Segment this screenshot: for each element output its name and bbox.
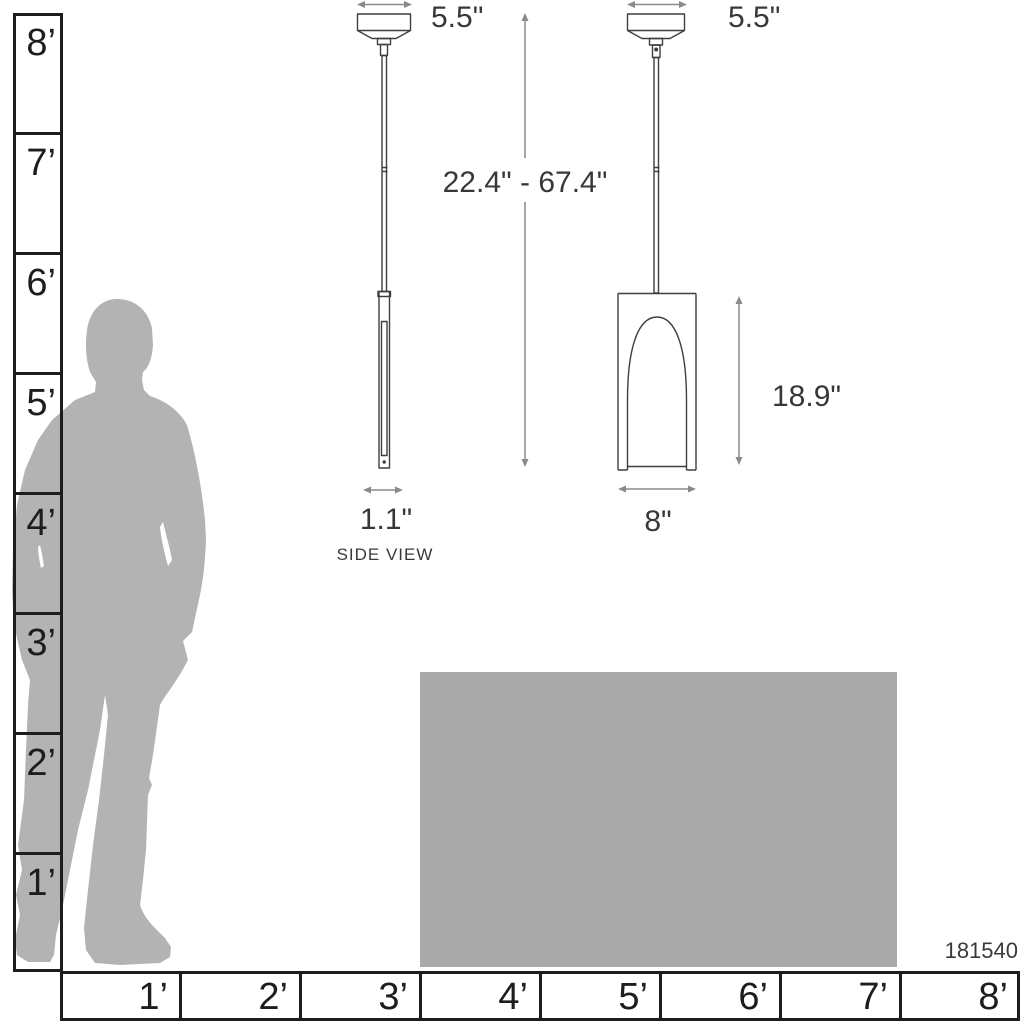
front-connector-screw [654, 48, 658, 52]
vertical-ruler-label: 1’ [26, 862, 56, 904]
front-shade-outline [618, 294, 696, 471]
shade-height-arrow [736, 296, 743, 465]
side-stem-rod [382, 56, 387, 292]
front-shade-arch [628, 317, 687, 467]
hanging-height-arrow [522, 13, 529, 467]
shade-width-arrow [618, 486, 696, 493]
vertical-ruler-label: 5’ [26, 382, 56, 424]
side-shade-profile [379, 292, 390, 469]
horizontal-ruler-label: 5’ [618, 976, 648, 1018]
product-number: 181540 [945, 938, 1018, 963]
diagram-canvas: 8’ 7’ 6’ 5’ 4’ 3’ 2’ 1’ 1’ 2’ 3’ 4’ 5’ 6… [0, 0, 1024, 1024]
vertical-ruler-label: 6’ [26, 262, 56, 304]
front-stem-connector [650, 39, 663, 46]
pendant-front-view-drawing [618, 14, 696, 470]
front-stem-rod [654, 58, 659, 294]
pendant-side-view-drawing [358, 14, 411, 468]
front-canopy [628, 14, 685, 39]
front-canopy-width-label: 5.5" [728, 1, 780, 34]
side-shade-bottom-detail [383, 460, 386, 463]
side-stem-connector-lower [381, 45, 388, 56]
side-canopy-width-arrow [357, 1, 412, 8]
horizontal-ruler-label: 4’ [498, 976, 528, 1018]
scale-diagram: 8’ 7’ 6’ 5’ 4’ 3’ 2’ 1’ 1’ 2’ 3’ 4’ 5’ 6… [0, 0, 1024, 1024]
table-scale-block [420, 672, 897, 967]
side-shade-inner-slot [382, 322, 388, 456]
horizontal-ruler-label: 1’ [138, 976, 168, 1018]
horizontal-ruler-label: 3’ [378, 976, 408, 1018]
side-canopy [358, 14, 411, 39]
shade-width-label: 8" [644, 505, 671, 538]
vertical-ruler-label: 8’ [26, 22, 56, 64]
vertical-ruler-label: 4’ [26, 502, 56, 544]
side-canopy-width-label: 5.5" [431, 1, 483, 34]
front-canopy-width-arrow [627, 1, 687, 8]
vertical-ruler-label: 3’ [26, 622, 56, 664]
side-shade-top-cap [378, 292, 391, 297]
side-stem-connector [378, 39, 391, 45]
dimension-annotations [357, 1, 743, 494]
horizontal-ruler: 1’ 2’ 3’ 4’ 5’ 6’ 7’ 8’ [62, 973, 1019, 1020]
horizontal-ruler-label: 2’ [258, 976, 288, 1018]
side-view-caption: SIDE VIEW [337, 545, 434, 564]
vertical-ruler-label: 2’ [26, 742, 56, 784]
horizontal-ruler-label: 8’ [978, 976, 1008, 1018]
side-profile-width-label: 1.1" [360, 503, 412, 536]
shade-height-label: 18.9" [772, 380, 841, 413]
horizontal-ruler-label: 6’ [738, 976, 768, 1018]
side-profile-width-arrow [363, 487, 403, 494]
horizontal-ruler-label: 7’ [858, 976, 888, 1018]
vertical-ruler-label: 7’ [26, 142, 56, 184]
hanging-height-range-label: 22.4" - 67.4" [443, 166, 608, 199]
